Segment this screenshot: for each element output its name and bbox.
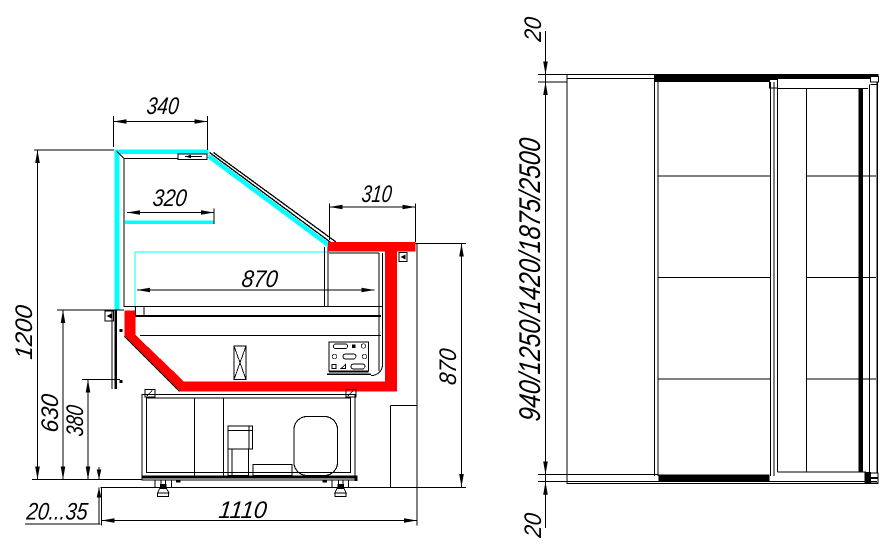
svg-text:940/1250/1420/1875/2500: 940/1250/1420/1875/2500 — [514, 136, 547, 423]
svg-text:20...35: 20...35 — [25, 499, 90, 526]
svg-text:380: 380 — [62, 403, 89, 437]
svg-text:870: 870 — [240, 266, 279, 293]
svg-text:310: 310 — [360, 181, 393, 208]
svg-text:1200: 1200 — [11, 303, 38, 360]
svg-text:340: 340 — [145, 93, 180, 120]
svg-text:20: 20 — [520, 15, 547, 43]
svg-text:20: 20 — [520, 511, 547, 539]
svg-text:630: 630 — [37, 392, 64, 433]
svg-text:870: 870 — [435, 347, 462, 386]
svg-text:1110: 1110 — [217, 497, 268, 524]
svg-text:320: 320 — [151, 185, 188, 212]
